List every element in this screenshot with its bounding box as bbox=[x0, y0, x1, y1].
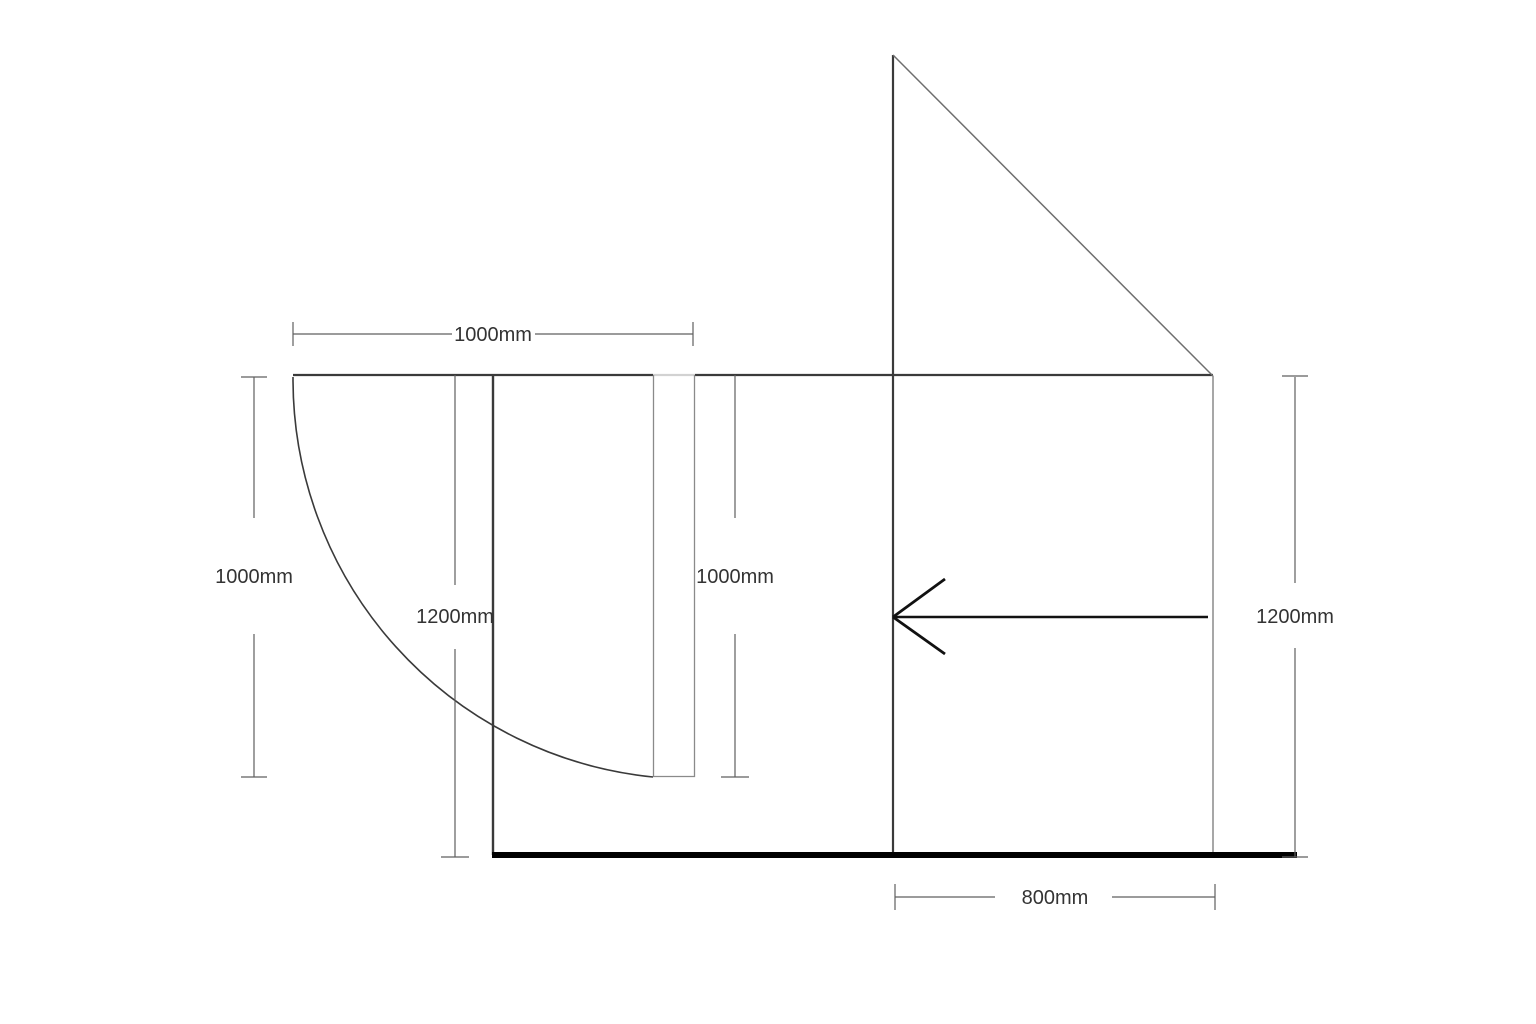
dimension-left-height: 1000mm bbox=[215, 377, 293, 777]
arrow-head-lower-barb bbox=[893, 617, 945, 654]
door-swing-arc bbox=[293, 377, 653, 777]
dimension-mid-right-height: 1000mm bbox=[696, 375, 774, 777]
dim-label-mid-right-height: 1000mm bbox=[696, 566, 774, 588]
dimension-right-height: 1200mm bbox=[1256, 376, 1334, 857]
dim-label-bottom-width: 800mm bbox=[1022, 887, 1089, 909]
dimension-top-width: 1000mm bbox=[293, 322, 693, 346]
dim-label-left-height: 1000mm bbox=[215, 566, 293, 588]
dim-label-mid-left-height: 1200mm bbox=[416, 606, 494, 628]
dim-label-top-width: 1000mm bbox=[454, 324, 532, 346]
walls bbox=[293, 55, 1297, 855]
door-leaf bbox=[654, 375, 695, 777]
arrow-head-upper-barb bbox=[893, 579, 945, 617]
drawing-canvas: 1000mm 1000mm 1200mm 1000mm 1200mm 800mm bbox=[0, 0, 1536, 1024]
dim-label-right-height: 1200mm bbox=[1256, 606, 1334, 628]
roof-slope-line bbox=[893, 55, 1213, 376]
dimension-bottom-width: 800mm bbox=[895, 884, 1215, 910]
direction-arrow bbox=[893, 579, 1208, 654]
dimension-mid-left-height: 1200mm bbox=[416, 375, 494, 857]
